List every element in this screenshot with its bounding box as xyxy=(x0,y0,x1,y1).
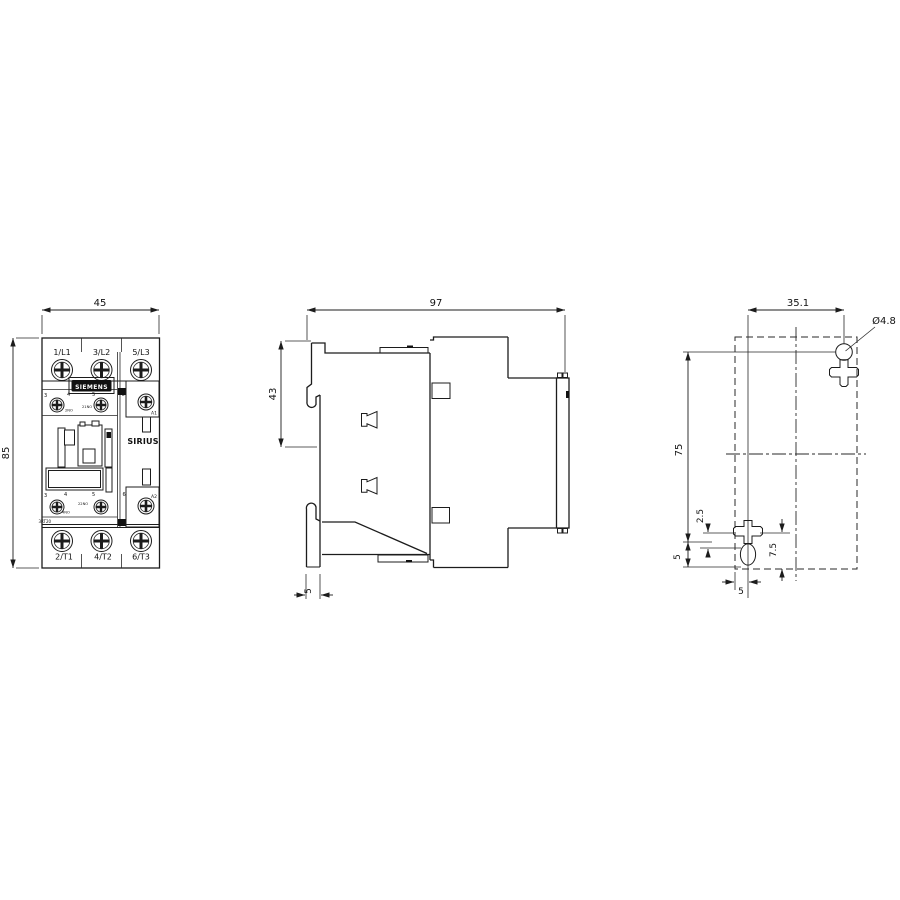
aux-marking: 22NO xyxy=(78,502,88,506)
mounting-hspacing-dimension: 35.1 xyxy=(748,298,844,310)
coil-screw-icon xyxy=(138,394,154,410)
side-height-dimension: 43 xyxy=(268,341,317,447)
coil-label-a1: A1 xyxy=(151,411,157,417)
coil-label-a2: A2 xyxy=(151,494,157,500)
mechanism-cutouts xyxy=(46,421,112,492)
aux-number: 4 xyxy=(67,392,70,398)
mount-hook-icon xyxy=(362,412,378,429)
mounting-edge-bottom-value: 5 xyxy=(738,587,744,597)
terminal-screw-icon xyxy=(52,531,73,552)
aux-number: 4 xyxy=(64,492,67,498)
hole-diameter-callout: Ø4.8 xyxy=(846,315,896,351)
side-rail-value: 5 xyxy=(304,588,314,594)
aux-number: 5 xyxy=(92,392,95,398)
aux-number: 3 xyxy=(44,493,47,499)
mounting-hspacing-value: 35.1 xyxy=(787,298,809,309)
front-height-dimension: 85 xyxy=(1,338,39,568)
side-depth-value: 97 xyxy=(430,298,443,309)
mounting-edge-left-value: 5 xyxy=(673,554,683,560)
latch-mark xyxy=(118,388,126,395)
aux-number: 5 xyxy=(92,492,95,498)
mounting-keyhole-top xyxy=(830,344,859,387)
aux-terminal-screw-icon xyxy=(50,398,64,412)
terminal-label-1L1: 1/L1 xyxy=(53,348,70,357)
latch-mark xyxy=(118,519,126,526)
series-label: SIRIUS xyxy=(127,437,158,446)
din-rail-plate xyxy=(557,378,570,528)
mounting-slot-a-dimension: 2.5 xyxy=(696,509,741,557)
terminal-screw-icon xyxy=(91,531,112,552)
aux-number: 3 xyxy=(44,393,47,399)
side-height-value: 43 xyxy=(268,388,279,401)
side-view: 97 43 5 xyxy=(268,298,569,599)
type-code-label: 3RT20 xyxy=(39,519,52,524)
mounting-edge-left-dimension: 5 xyxy=(673,542,741,567)
aux-terminal-screw-icon xyxy=(94,398,108,412)
terminal-label-4T2: 4/T2 xyxy=(94,553,112,562)
hole-diameter-value: Ø4.8 xyxy=(872,315,896,327)
terminal-label-2T1: 2/T1 xyxy=(55,553,73,562)
terminal-label-5L3: 5/L3 xyxy=(132,348,149,357)
terminal-screw-icon xyxy=(131,360,152,381)
aux-marking: 2NO xyxy=(65,409,73,413)
terminal-label-6T3: 6/T3 xyxy=(132,553,150,562)
terminal-screw-icon xyxy=(131,531,152,552)
brand-badge-label: SIEMENS xyxy=(75,384,108,391)
mounting-slot-a-value: 2.5 xyxy=(696,509,706,523)
centerlines xyxy=(726,327,866,581)
front-height-value: 85 xyxy=(1,447,12,460)
aux-marking: 4NO xyxy=(62,511,70,515)
coil-screw-icon xyxy=(138,498,154,514)
dimension-drawing-page: 45 85 1/L1 3/L2 5/L3 SIEMENS 3 4 xyxy=(0,0,900,900)
mounting-slot-b-dimension: 7.5 xyxy=(760,519,790,581)
aux-number: 6 xyxy=(123,492,126,498)
contactor-side-profile xyxy=(306,337,569,568)
side-rail-dimension: 5 xyxy=(294,574,333,599)
aux-terminal-screw-icon xyxy=(94,500,108,514)
front-view: 45 85 1/L1 3/L2 5/L3 SIEMENS 3 4 xyxy=(1,298,160,568)
aux-marking: 21NO xyxy=(82,405,92,409)
contactor-dimension-drawing: 45 85 1/L1 3/L2 5/L3 SIEMENS 3 4 xyxy=(0,0,900,900)
mounting-view: 35.1 Ø4.8 75 5 xyxy=(673,298,896,598)
front-width-dimension: 45 xyxy=(42,298,159,334)
mounting-edge-bottom-dimension: 5 xyxy=(722,572,761,597)
front-width-value: 45 xyxy=(94,298,107,309)
mounting-vspacing-value: 75 xyxy=(674,444,685,457)
terminal-label-3L2: 3/L2 xyxy=(93,348,110,357)
mount-hook-icon xyxy=(362,478,378,495)
side-depth-dimension: 97 xyxy=(307,298,565,372)
mounting-slot-b-value: 7.5 xyxy=(769,543,779,557)
